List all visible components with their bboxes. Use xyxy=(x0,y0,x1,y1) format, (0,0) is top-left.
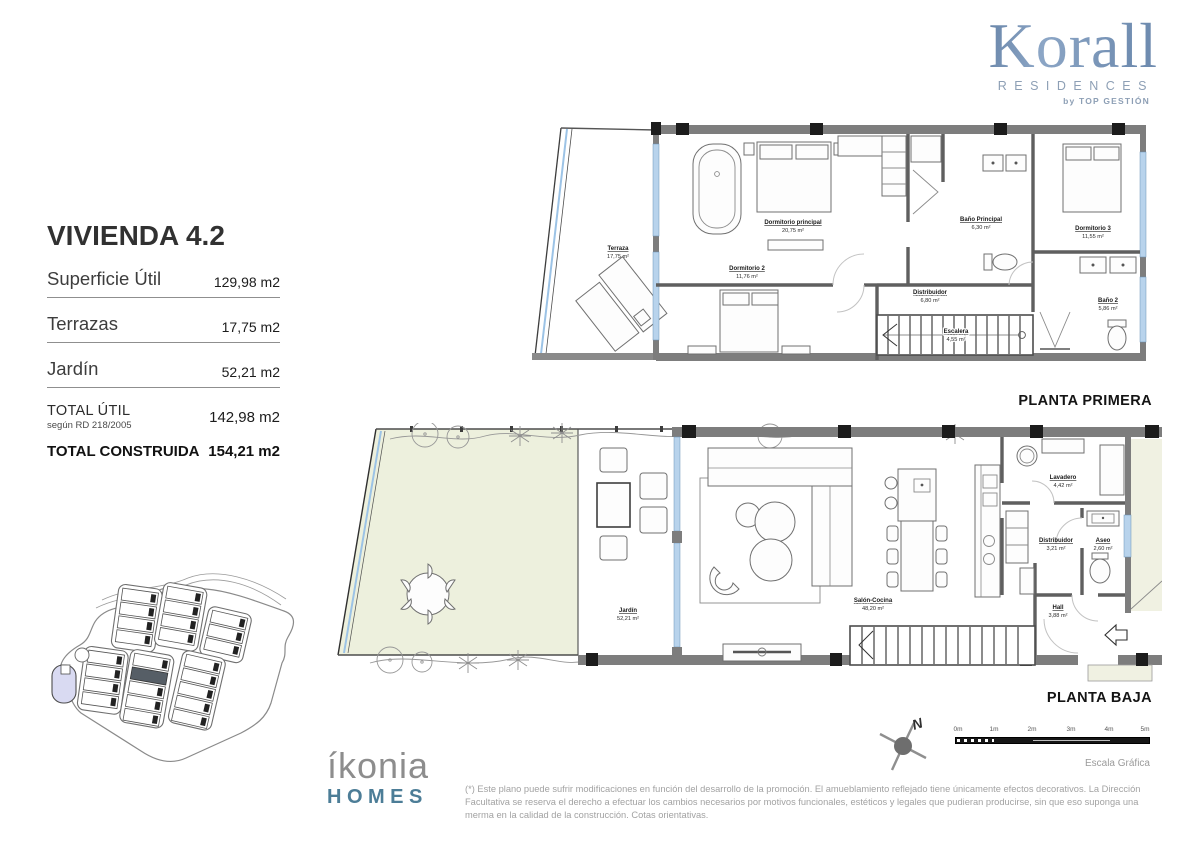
room-label-dormitorio-principal: Dormitorio principal xyxy=(764,220,822,226)
room-area-lavadero: 4,42 m² xyxy=(1054,483,1073,489)
disclaimer-text: (*) Este plano puede sufrir modificacion… xyxy=(465,783,1153,822)
room-label-dormitorio-2: Dormitorio 2 xyxy=(729,266,765,272)
ikonia-wordmark: íkonia xyxy=(327,748,429,784)
window-salon-west-2 xyxy=(674,543,680,647)
window-salon-west-1 xyxy=(674,437,680,531)
spec-label: Jardín xyxy=(47,358,98,380)
total-util-label: TOTAL ÚTIL xyxy=(47,403,132,419)
north-compass: N xyxy=(876,712,936,776)
floor-plan-planta-baja: Jardín 52,21 m² xyxy=(330,423,1162,687)
room-label-escalera: Escalera xyxy=(944,329,969,335)
scale-tick-2: 2m xyxy=(1027,726,1036,733)
room-label-hall: Hall xyxy=(1052,605,1063,611)
room-label-distribuidor-f0: Distribuidor xyxy=(1039,538,1074,544)
window-west-1 xyxy=(653,144,659,236)
unit-title: VIVIENDA 4.2 xyxy=(47,220,280,252)
scale-tick-4: 4m xyxy=(1104,726,1113,733)
room-area-jardin: 52,21 m² xyxy=(617,616,639,622)
bano-principal: Baño Principal 6,30 m² xyxy=(960,155,1026,270)
ikonia-logo: íkonia HOMES xyxy=(327,748,429,809)
kitchen-counter xyxy=(975,465,1000,597)
room-label-bano-principal: Baño Principal xyxy=(960,217,1002,223)
site-plan xyxy=(36,553,316,771)
window-east-1 xyxy=(1140,152,1146,257)
scale-bar-rule xyxy=(955,737,1150,744)
spec-row-terrazas: Terrazas 17,75 m2 xyxy=(47,313,280,343)
bano-2: Baño 2 5,86 m² xyxy=(1040,257,1136,350)
room-area-dormitorio-principal: 20,75 m² xyxy=(782,228,804,234)
ikonia-homes-text: HOMES xyxy=(327,786,429,809)
dressing-closet xyxy=(882,136,941,214)
unit-spec-panel: VIVIENDA 4.2 Superficie Útil 129,98 m2 T… xyxy=(47,220,280,460)
room-area-bano-principal: 6,30 m² xyxy=(972,225,991,231)
spec-label: Terrazas xyxy=(47,313,118,335)
north-letter: N xyxy=(910,714,925,733)
roundabout xyxy=(75,648,89,662)
scale-bar: 0m 1m 2m 3m 4m 5m xyxy=(955,726,1149,750)
floor-plan-planta-primera: Terraza 17,75 m² xyxy=(528,122,1153,380)
entry-arrow-icon xyxy=(1105,625,1127,645)
spec-value: 17,75 m2 xyxy=(222,319,280,335)
total-util-sublabel: según RD 218/2005 xyxy=(47,420,132,431)
outdoor-lounge-set xyxy=(597,448,667,560)
room-label-salon-cocina: Salón-Cocina xyxy=(854,598,893,604)
scale-tick-1: 1m xyxy=(989,726,998,733)
spec-value: 129,98 m2 xyxy=(214,274,280,290)
hall: Hall 3,88 m² xyxy=(1044,605,1127,653)
spec-value: 52,21 m2 xyxy=(222,364,280,380)
spec-row-total-util: TOTAL ÚTIL según RD 218/2005 142,98 m2 xyxy=(47,403,280,431)
korall-by-top-gestion: by TOP GESTIÓN xyxy=(900,96,1150,106)
room-area-dormitorio-3: 11,55 m² xyxy=(1082,234,1104,240)
room-label-lavadero: Lavadero xyxy=(1050,475,1077,481)
room-area-salon-cocina: 48,20 m² xyxy=(862,606,884,612)
scale-tick-0: 0m xyxy=(953,726,962,733)
room-area-hall: 3,88 m² xyxy=(1049,613,1068,619)
total-construida-label: TOTAL CONSTRUIDA xyxy=(47,443,200,460)
room-label-distribuidor-f1: Distribuidor xyxy=(913,290,948,296)
room-area-distribuidor-f1: 6,80 m² xyxy=(921,298,940,304)
distribuidor-f0: Distribuidor 3,21 m² xyxy=(1006,511,1074,594)
scale-tick-5: 5m xyxy=(1140,726,1149,733)
stairs-f0 xyxy=(850,626,1035,665)
aseo: Aseo 2,60 m² xyxy=(1087,511,1119,583)
lavadero: Lavadero 4,42 m² xyxy=(1017,439,1124,495)
room-area-dormitorio-2: 11,76 m² xyxy=(736,274,758,280)
caption-planta-primera: PLANTA PRIMERA xyxy=(1000,393,1152,409)
escalera: Escalera 4,55 m² xyxy=(877,315,1033,355)
room-label-terraza: Terraza xyxy=(608,246,630,252)
room-area-escalera: 4,55 m² xyxy=(947,337,966,343)
escala-grafica-label: Escala Gráfica xyxy=(1040,758,1150,769)
spec-row-total-construida: TOTAL CONSTRUIDA 154,21 m2 xyxy=(47,443,280,460)
total-construida-value: 154,21 m2 xyxy=(208,443,280,460)
kitchen-dining xyxy=(885,465,1000,597)
window-aseo-east xyxy=(1124,515,1131,557)
dormitorio-2: Dormitorio 2 11,76 m² xyxy=(688,266,810,354)
dormitorio-principal: Dormitorio principal 20,75 m² xyxy=(693,136,893,250)
room-label-bano-2: Baño 2 xyxy=(1098,298,1119,304)
room-label-aseo: Aseo xyxy=(1096,538,1111,544)
room-label-jardin: Jardín xyxy=(619,608,637,614)
dormitorio-3: Dormitorio 3 11,55 m² xyxy=(1063,144,1121,240)
window-east-2 xyxy=(1140,277,1146,342)
room-area-aseo: 2,60 m² xyxy=(1094,546,1113,552)
armchair xyxy=(710,567,739,595)
korall-residences-text: RESIDENCES xyxy=(900,79,1154,93)
room-area-distribuidor-f0: 3,21 m² xyxy=(1047,546,1066,552)
room-area-terraza: 17,75 m² xyxy=(607,254,629,260)
spec-row-superficie-util: Superficie Útil 129,98 m2 xyxy=(47,268,280,298)
distribuidor-f1: Distribuidor 6,80 m² xyxy=(913,290,948,304)
total-util-value: 142,98 m2 xyxy=(209,409,280,426)
korall-wordmark: Korall xyxy=(900,16,1158,77)
compass-hub xyxy=(894,737,912,755)
window-west-2 xyxy=(653,252,659,340)
room-area-bano-2: 5,86 m² xyxy=(1099,306,1118,312)
korall-logo: Korall RESIDENCES by TOP GESTIÓN xyxy=(900,16,1158,106)
room-label-dormitorio-3: Dormitorio 3 xyxy=(1075,226,1111,232)
spec-row-jardin: Jardín 52,21 m2 xyxy=(47,358,280,388)
scale-tick-3: 3m xyxy=(1066,726,1075,733)
caption-planta-baja: PLANTA BAJA xyxy=(1000,690,1152,706)
spec-label: Superficie Útil xyxy=(47,268,161,290)
terrace: Terraza 17,75 m² xyxy=(532,128,667,360)
entry-step xyxy=(1088,665,1152,681)
